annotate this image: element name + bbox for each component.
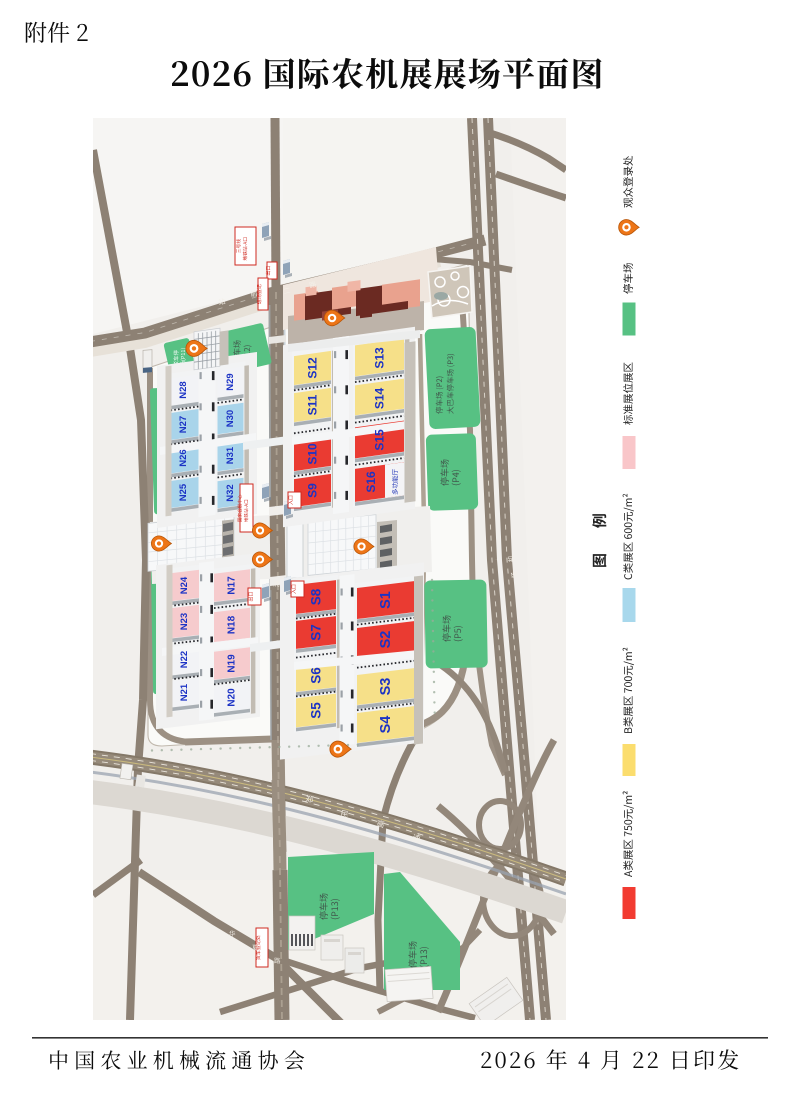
svg-text:N28: N28 — [178, 381, 189, 398]
svg-text:N25: N25 — [178, 483, 189, 501]
svg-text:S6: S6 — [309, 667, 324, 684]
svg-text:S5: S5 — [309, 702, 324, 719]
svg-text:N26: N26 — [178, 449, 189, 466]
svg-text:S4: S4 — [378, 716, 394, 734]
svg-text:S14: S14 — [373, 388, 387, 410]
svg-text:N27: N27 — [178, 416, 189, 433]
svg-text:N22: N22 — [179, 651, 190, 668]
svg-text:N24: N24 — [179, 576, 190, 594]
svg-text:S16: S16 — [364, 471, 378, 493]
svg-text:S12: S12 — [306, 357, 320, 379]
svg-text:N31: N31 — [225, 446, 236, 464]
svg-text:S15: S15 — [373, 429, 387, 451]
svg-text:S13: S13 — [373, 347, 387, 369]
svg-text:S8: S8 — [309, 588, 324, 605]
svg-text:S10: S10 — [306, 443, 320, 465]
svg-text:N17: N17 — [227, 576, 238, 595]
svg-text:S11: S11 — [306, 394, 320, 415]
svg-text:S1: S1 — [378, 591, 394, 609]
svg-text:S9: S9 — [306, 483, 320, 498]
svg-text:N18: N18 — [227, 615, 238, 634]
svg-text:N29: N29 — [225, 373, 236, 390]
svg-text:S7: S7 — [309, 624, 324, 641]
svg-text:N32: N32 — [225, 484, 236, 501]
svg-text:S3: S3 — [378, 678, 394, 696]
svg-text:N21: N21 — [179, 683, 190, 701]
svg-text:N19: N19 — [227, 654, 238, 673]
svg-text:N30: N30 — [225, 410, 236, 427]
svg-text:N20: N20 — [227, 688, 238, 707]
svg-text:S2: S2 — [378, 631, 394, 649]
svg-text:N23: N23 — [179, 613, 190, 630]
